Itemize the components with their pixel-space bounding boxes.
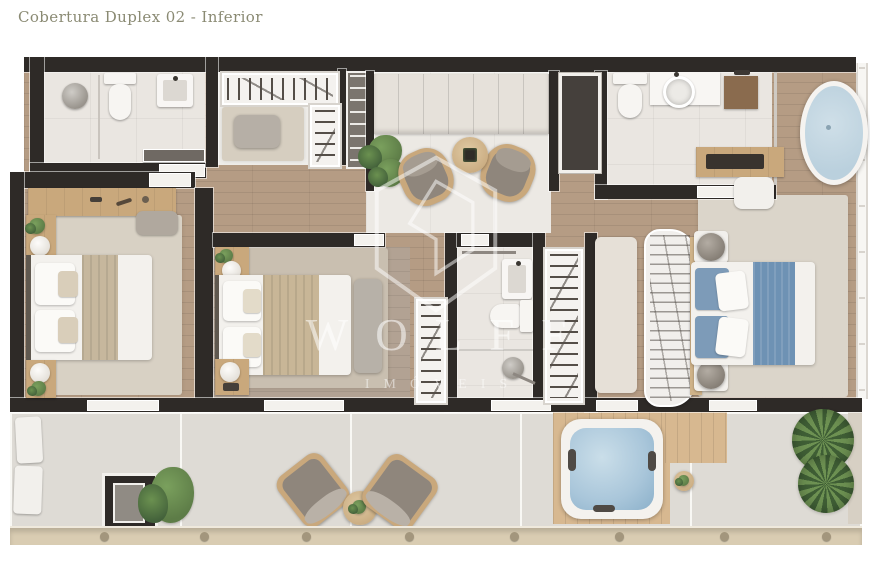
wall-top [24,57,856,72]
closet-ottoman [234,115,280,148]
toilet2-bowl [618,84,642,118]
sink-bath3 [502,259,532,299]
railing-post [405,532,414,541]
spa-deck-extension [665,412,727,463]
tall-cabinet [559,73,601,173]
railing-post [302,532,311,541]
wall-bedroom1-bedroom2 [195,188,213,412]
door-bath3 [462,235,488,245]
sideboard-inset [706,154,764,169]
desk-chair-gray [136,211,178,235]
spa-table-plant [678,475,689,486]
shower-mat [724,76,758,109]
accent-pillow [243,289,261,313]
toilet2-tank [613,73,647,84]
desk-decor [90,197,102,202]
accent-pillow [58,317,78,343]
desk-decor [142,196,149,203]
curved-slat-headboard [644,229,696,407]
shower-divider [459,349,533,351]
tray-plant [463,148,477,162]
headboard [26,255,31,360]
terrace-door-3 [492,401,550,410]
b2-tray [223,383,239,391]
master-daybed [595,237,637,393]
bedroom1-bed [26,255,152,360]
toilet-tank [104,73,136,84]
shower-fixture [734,70,750,75]
bed-bench [354,279,382,373]
floor-plan-page: Cobertura Duplex 02 - Inferior [0,0,870,580]
white-pillow [715,316,749,357]
closet-rack-top [220,71,340,107]
wall-living-right [549,71,559,191]
wardrobe-panel-wall [374,74,549,134]
master-closet-rack [543,247,585,405]
floor-plan: WOLFF IMÓVEIS [10,57,862,543]
hot-tub-seat [593,505,615,512]
railing-post [822,532,831,541]
railing-post [510,532,519,541]
palm-plant-bottom [798,455,854,513]
freestanding-bathtub [800,81,868,185]
desk-decor [116,198,132,207]
bathtub-drain [826,125,831,130]
towel-bar [462,251,516,254]
railing-post [720,532,729,541]
shower-head [62,83,88,109]
round-stool-top [697,233,725,261]
master-sideboard [696,147,784,177]
accent-pillow [243,333,261,357]
round-tray-table [452,137,488,173]
railing-post [200,532,209,541]
toilet3-bowl [490,304,520,328]
terrace-bench-2 [13,466,43,515]
closet-rack-right [308,103,342,169]
round-sink [663,76,695,108]
corridor-closet-rack [414,297,448,405]
spa-table [674,471,694,491]
tan-throw [263,275,319,375]
master-bed [691,262,815,365]
beige-throw [82,255,118,360]
terrace-door-2 [265,401,343,410]
terrace-door-5 [710,401,756,410]
terrace-railing [10,526,862,545]
nightstand-pouf-2 [30,363,50,383]
towel-shelf [143,149,205,162]
accent-pillow [58,271,78,297]
terrace-door-1 [88,401,158,410]
wall-outer-left [10,172,24,412]
hot-tub-seat [648,451,656,471]
nightstand-pouf [30,236,50,256]
toilet3-tank [520,300,533,332]
door-bedroom1 [150,174,190,186]
b2-pouf [220,362,240,382]
terrace-bench [15,416,43,463]
door-bedroom2 [355,235,383,245]
desk-chair [734,177,774,209]
round-stool-bottom [697,361,725,389]
blue-bed-runner [753,262,795,365]
sink-faucet [674,72,679,77]
hot-tub-seat [568,449,576,471]
terrace-door-4 [597,401,637,410]
white-pillow [715,270,749,311]
sink-suite1 [157,74,193,107]
shower-glass-line [98,75,100,159]
railing-post [100,532,109,541]
toilet-bowl [109,84,131,120]
hot-tub [561,419,663,519]
page-title: Cobertura Duplex 02 - Inferior [18,8,263,26]
wall-closet-left [206,57,218,167]
railing-post [615,532,624,541]
